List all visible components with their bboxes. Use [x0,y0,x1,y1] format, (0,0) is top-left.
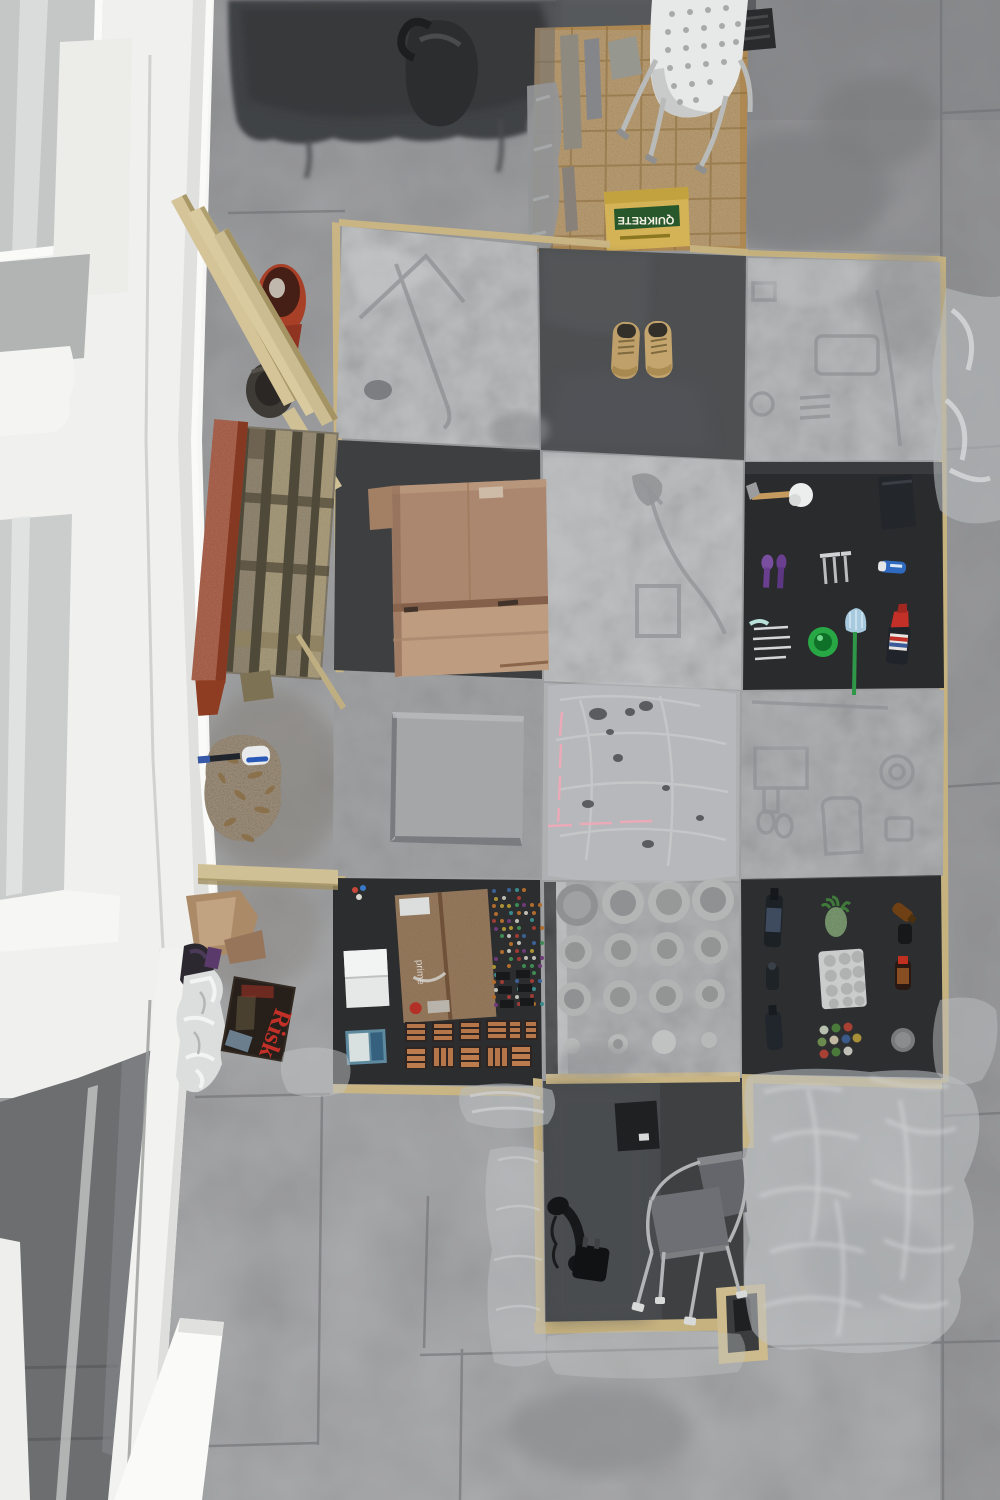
svg-text:prime: prime [413,959,426,985]
svg-text:QUIKRETE: QUIKRETE [618,214,675,226]
